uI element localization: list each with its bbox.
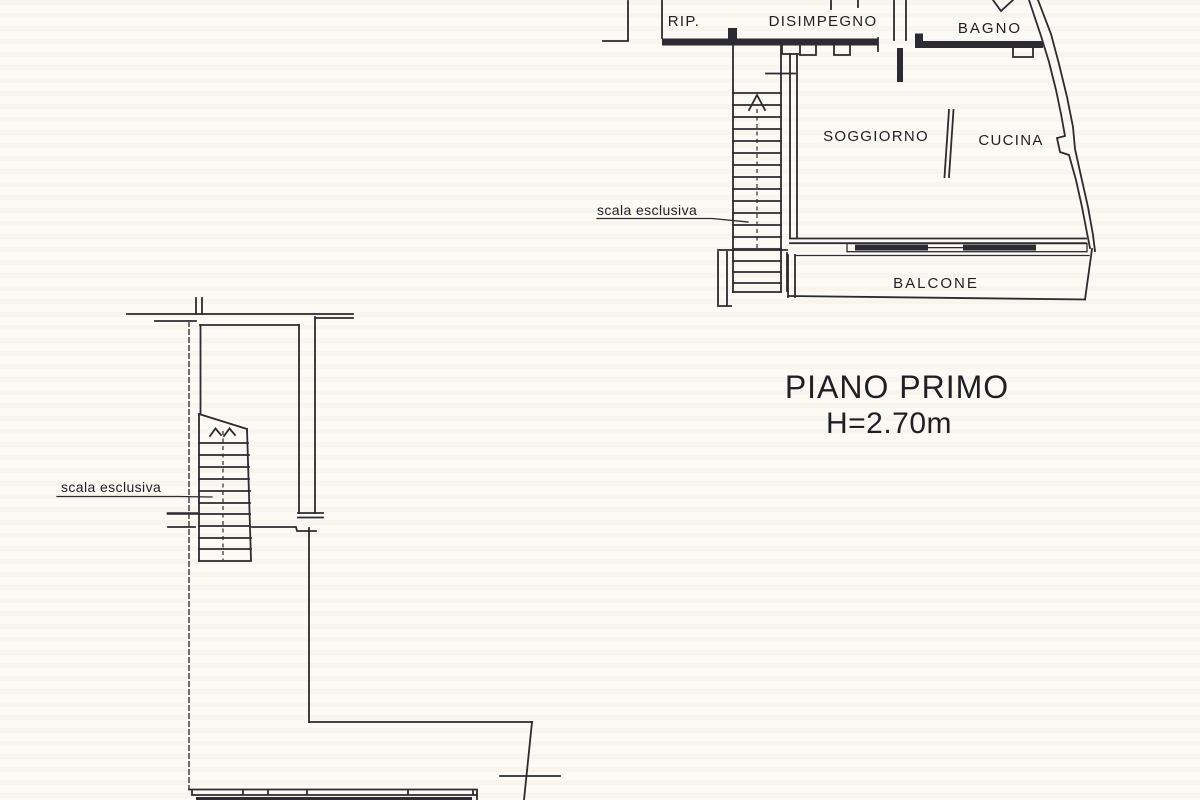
door-recess-3 (834, 46, 850, 55)
balcony-south (788, 296, 1085, 300)
floor-caption: PIANO PRIMO H=2.70m (785, 369, 1009, 440)
balcony-west (788, 255, 795, 297)
wall-jamb-rip-disimpegno (728, 28, 737, 39)
stair-leader-line (57, 497, 212, 498)
balcony-east (1085, 249, 1092, 300)
upper-staircase (718, 45, 787, 306)
window-band (847, 244, 1087, 252)
scanned-floor-plan-page: RIP. DISIMPEGNO BAGNO SOGGIORNO CUCINA B… (0, 0, 1200, 800)
window-glass-1 (855, 245, 928, 251)
room-label-disimpegno: DISIMPEGNO (769, 13, 878, 30)
stair-treads (199, 443, 251, 549)
window-glass-2 (963, 245, 1036, 251)
wall-disimpegno-south (662, 39, 878, 46)
lower-walls (127, 298, 560, 800)
wall-east-slant (524, 722, 532, 800)
room-label-cucina: CUCINA (978, 132, 1043, 149)
wall-soggiorno-south (790, 239, 1086, 244)
chimney-ticks (196, 298, 202, 314)
room-label-bagno: BAGNO (958, 20, 1022, 37)
caption-floor-height: H=2.70m (826, 407, 952, 440)
wall-notch-top-right (993, 0, 1013, 11)
door-recess-2 (800, 46, 816, 55)
wall-bagno-hook (915, 34, 923, 42)
stair-arrow-caret-2 (224, 429, 235, 437)
upper-floor-plan: RIP. DISIMPEGNO BAGNO SOGGIORNO CUCINA B… (597, 0, 1095, 306)
caption-floor-name: PIANO PRIMO (785, 369, 1009, 405)
landing-line-right (252, 527, 316, 531)
stair-side-wall (718, 252, 731, 306)
wall-east-outer (1038, 0, 1095, 251)
stair-label-lower: scala esclusiva (61, 479, 161, 495)
floor-plan-drawing: RIP. DISIMPEGNO BAGNO SOGGIORNO CUCINA B… (0, 0, 1200, 800)
stair-arrow-caret-1 (210, 429, 221, 437)
wall-soggiorno-west (790, 54, 797, 238)
wall-bagno-partition (897, 48, 903, 82)
partition-soggiorno-cucina (945, 110, 954, 177)
wall-corner-top-left (603, 1, 628, 41)
room-label-soggiorno: SOGGIORNO (823, 128, 929, 145)
wall-east-inner (1029, 0, 1090, 248)
stair-top-slant (199, 414, 247, 429)
stair-shaft-right (247, 429, 251, 560)
lower-staircase (199, 414, 251, 561)
wall-bagno-south (915, 41, 1043, 48)
room-label-balcone: BALCONE (893, 275, 979, 292)
stair-arrow-head (749, 95, 765, 110)
wall-bagno-notch (1013, 48, 1033, 57)
wall-end-ticks-right (298, 513, 323, 518)
wall-bagno-west (894, 0, 906, 40)
door-recess-1 (782, 46, 798, 54)
stair-treads-lower (733, 261, 781, 292)
stair-label-upper: scala esclusiva (597, 202, 697, 218)
stair-leader-line (597, 219, 748, 223)
stair-pillar (781, 250, 787, 291)
room-label-rip: RIP. (668, 13, 700, 30)
lower-floor-plan: scala esclusiva (57, 298, 560, 800)
lower-window-band (189, 790, 477, 800)
